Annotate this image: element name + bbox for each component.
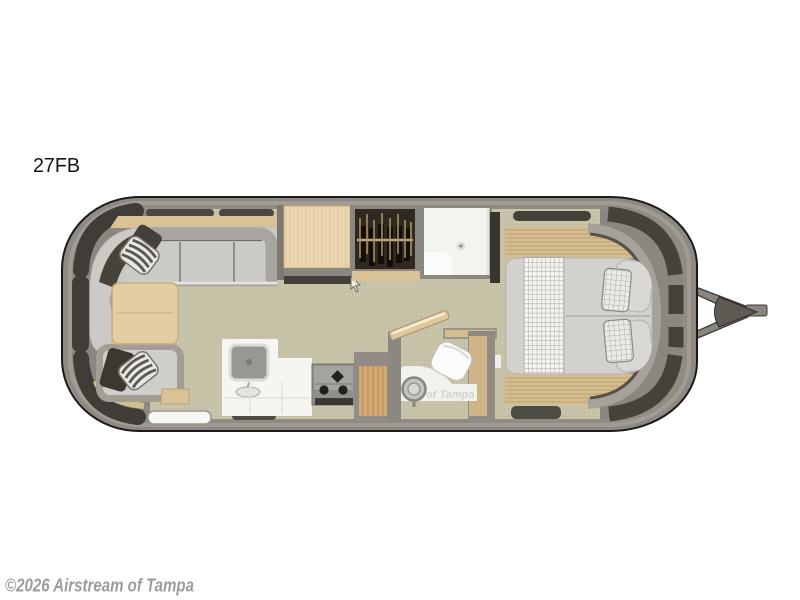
svg-text:of Tampa: of Tampa [426, 389, 475, 401]
svg-text:27FB: 27FB [33, 155, 80, 177]
svg-text:©2026 Airstream of Tampa: ©2026 Airstream of Tampa [5, 576, 194, 596]
